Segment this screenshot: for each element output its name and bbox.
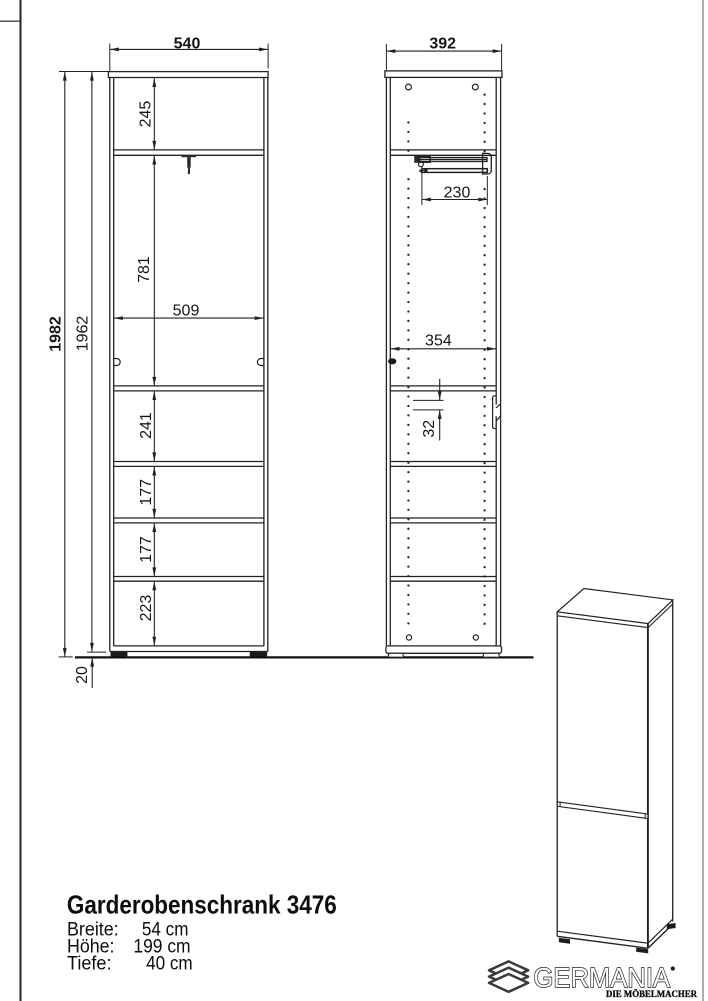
svg-text:20: 20 (74, 666, 91, 684)
svg-text:177: 177 (138, 479, 155, 506)
svg-text:509: 509 (173, 302, 200, 319)
svg-text:354: 354 (425, 332, 452, 349)
svg-text:Tiefe:: Tiefe: (67, 953, 112, 974)
svg-text:32: 32 (421, 420, 438, 438)
svg-text:781: 781 (136, 256, 153, 283)
svg-text:230: 230 (444, 184, 471, 201)
svg-text:241: 241 (138, 412, 155, 439)
svg-text:1962: 1962 (75, 316, 92, 352)
svg-text:177: 177 (138, 536, 155, 563)
svg-text:1982: 1982 (48, 316, 65, 352)
svg-text:223: 223 (138, 595, 155, 622)
svg-text:GERMANIA: GERMANIA (534, 962, 671, 993)
svg-text:392: 392 (429, 36, 456, 53)
svg-text:245: 245 (138, 101, 155, 128)
svg-text:540: 540 (174, 36, 201, 53)
svg-text:40 cm: 40 cm (146, 953, 193, 974)
svg-text:Garderobenschrank 3476: Garderobenschrank 3476 (67, 890, 337, 920)
